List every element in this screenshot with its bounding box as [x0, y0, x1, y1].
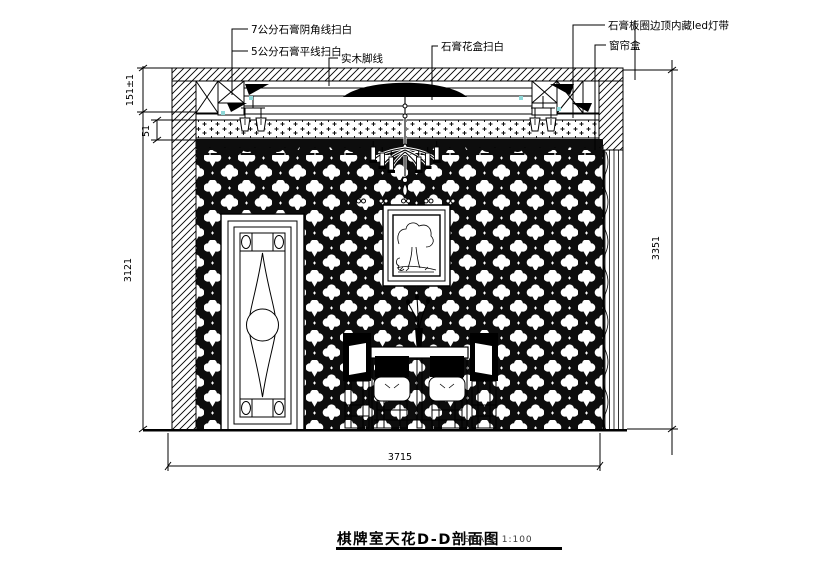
- curtain-panel: [604, 150, 623, 430]
- annotation-corner-line: 7公分石膏阴角线扫白: [251, 23, 352, 36]
- dim-left-top: 151±1: [125, 74, 136, 106]
- artwork-frame: [383, 205, 450, 286]
- blocking-x-left: [196, 81, 244, 115]
- annotation-wood-line: 实木脚线: [341, 52, 383, 65]
- dim-right-height: 3351: [651, 236, 662, 260]
- dim-left-mid: 51: [141, 125, 152, 137]
- dim-bottom-width: 3715: [388, 452, 412, 463]
- dim-left-height: 3121: [123, 258, 134, 282]
- annotation-flower-box: 石膏花盒扫白: [441, 40, 504, 53]
- drawing-scale: SCALE 1:100: [464, 535, 533, 545]
- chandelier-canopy: [343, 83, 467, 97]
- left-wall-column: [172, 81, 196, 430]
- floor-line: [143, 429, 627, 432]
- section-drawing: 151±1 51 3121 3351 3715 7公分石膏阴角线扫白 5公分石膏…: [0, 0, 824, 583]
- annotation-led-strip: 石膏板圈边顶内藏led灯带: [608, 19, 729, 32]
- annotation-curtain-box: 窗帘盒: [609, 39, 641, 52]
- dimension-bottom: [165, 433, 603, 471]
- annotation-flat-line: 5公分石膏平线扫白: [251, 45, 342, 58]
- title-underline: [336, 547, 562, 550]
- cad-canvas: 151±1 51 3121 3351 3715 7公分石膏阴角线扫白 5公分石膏…: [0, 0, 824, 583]
- entry-door: [221, 214, 304, 430]
- ceiling-slab: [172, 68, 623, 81]
